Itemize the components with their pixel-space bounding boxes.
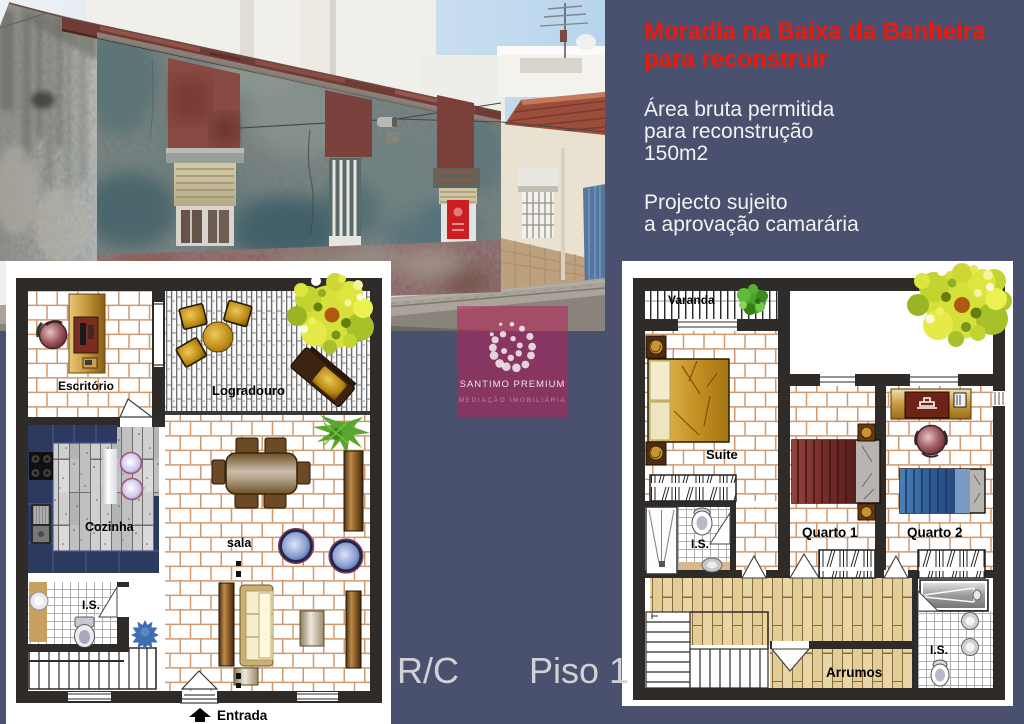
svg-text:Escritório: Escritório — [58, 379, 114, 393]
svg-text:I.S.: I.S. — [930, 643, 948, 657]
svg-text:I.S.: I.S. — [82, 598, 100, 612]
svg-text:Arrumos: Arrumos — [826, 665, 882, 680]
svg-text:Quarto 2: Quarto 2 — [907, 525, 963, 540]
svg-text:Quarto 1: Quarto 1 — [802, 525, 858, 540]
svg-text:Cozinha: Cozinha — [85, 520, 135, 534]
svg-text:Varanda: Varanda — [668, 293, 715, 307]
svg-text:I.S.: I.S. — [691, 537, 709, 551]
svg-text:Suite: Suite — [706, 447, 738, 462]
svg-text:Entrada: Entrada — [217, 708, 268, 723]
svg-text:Logradouro: Logradouro — [212, 383, 285, 398]
svg-text:sala: sala — [227, 536, 252, 550]
